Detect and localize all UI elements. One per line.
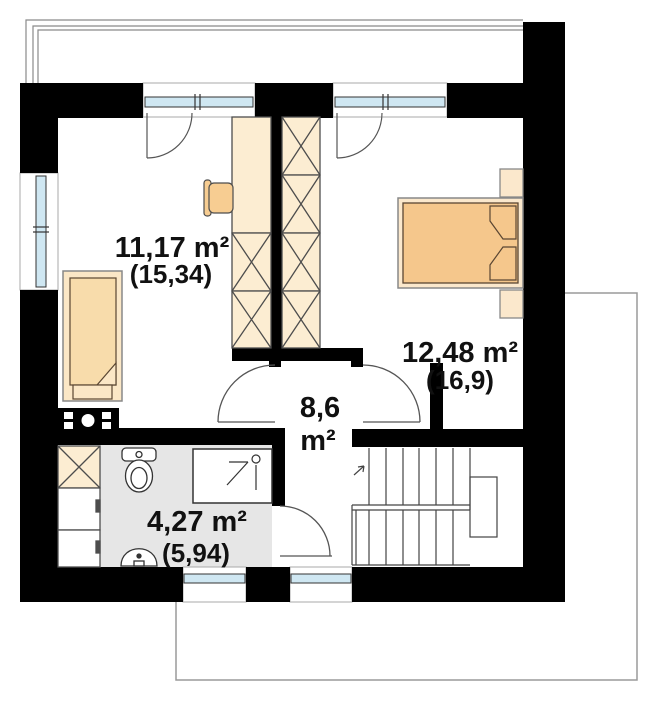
single-bed (63, 271, 122, 401)
hall-area-unit-label: m² (300, 425, 336, 457)
stair-landing-rail (470, 477, 497, 537)
room2-area-gross-label: (16,9) (426, 365, 494, 395)
window-room1 (145, 97, 253, 107)
desk-chair (204, 180, 233, 216)
wall-bottom-1 (20, 567, 183, 602)
wall-door-nub-right (351, 361, 363, 367)
wall-bathroom-hall (272, 445, 285, 506)
floor-plan-drawing: 11,17 m² (15,34) 12,48 m² (16,9) 8,6 m² … (0, 0, 660, 705)
floor-plan: 11,17 m² (15,34) 12,48 m² (16,9) 8,6 m² … (0, 0, 660, 705)
wall-hall-top (232, 348, 363, 361)
stair-direction-arrow (354, 466, 364, 475)
bathroom-area-label: 4,27 m² (147, 506, 247, 538)
wall-corner-column (20, 83, 58, 173)
hall-area-label: 8,6 (300, 392, 340, 424)
wall-room-divider (271, 118, 282, 352)
wardrobe-room2 (282, 117, 320, 348)
wall-top-center (255, 83, 333, 118)
roof-outline (26, 20, 523, 83)
bed-footboard (73, 385, 112, 399)
window-hall (291, 574, 351, 583)
window-bathroom (184, 574, 245, 583)
wall-right (523, 22, 565, 602)
wall-top-right (447, 83, 523, 118)
room1-area-gross-label: (15,34) (130, 259, 212, 289)
window-swing-arc-room2 (337, 113, 382, 158)
wall-left (20, 290, 58, 602)
shower (193, 449, 272, 503)
cabinet-handle (96, 541, 100, 553)
door-arc-bathroom (280, 506, 330, 556)
wall-bottom-2 (246, 567, 290, 602)
double-bed (398, 198, 523, 288)
window-room2 (335, 97, 445, 107)
bathroom-area-gross-label: (5,94) (162, 538, 230, 568)
wall-stair-top (352, 429, 523, 447)
nightstand-bottom (500, 290, 523, 318)
wardrobe-room1 (232, 233, 271, 348)
desk (232, 117, 271, 233)
wall-door-nub-left (269, 361, 281, 367)
stairs (352, 448, 497, 565)
window-swing-arc-room1 (147, 113, 192, 158)
door-arc-room2 (363, 365, 420, 422)
cabinet-handle (96, 500, 100, 512)
washing-machine (58, 446, 100, 488)
door-arc-room1 (218, 365, 275, 422)
bathroom-cabinets (58, 488, 100, 567)
nightstand-top (500, 169, 523, 197)
chimney-flue-block (58, 408, 119, 433)
